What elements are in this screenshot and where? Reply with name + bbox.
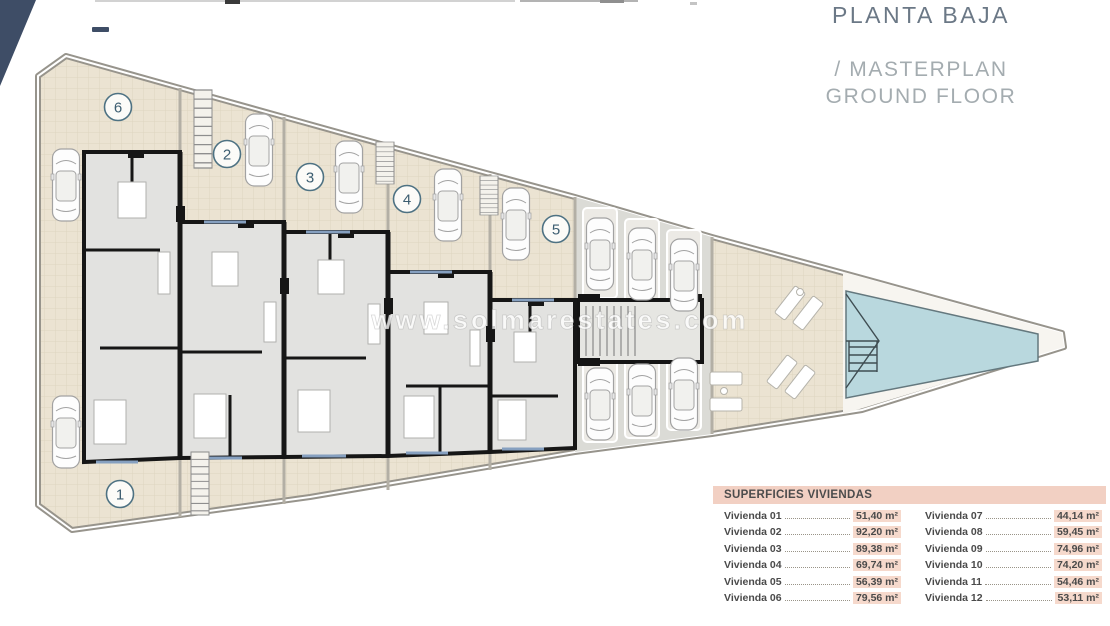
table-row: Vivienda 0744,14 m²: [925, 510, 1102, 526]
table-columns: Vivienda 0151,40 m² Vivienda 0292,20 m² …: [713, 510, 1106, 608]
subtitle-line-1: / MASTERPLAN: [806, 56, 1036, 83]
dot-leader: [785, 567, 850, 568]
page-subtitle: / MASTERPLAN GROUND FLOOR: [806, 56, 1036, 110]
table-row: Vivienda 0389,38 m²: [724, 543, 901, 559]
dot-leader: [785, 518, 850, 519]
unit-number: 4: [403, 192, 411, 209]
dot-leader: [986, 551, 1051, 552]
unit-area: 69,74 m²: [853, 559, 901, 571]
unit-area: 51,40 m²: [853, 510, 901, 522]
table-row: Vivienda 0556,39 m²: [724, 576, 901, 592]
surfaces-table: SUPERFICIES VIVIENDAS Vivienda 0151,40 m…: [713, 486, 1106, 608]
car-icon: [51, 149, 81, 221]
unit-name: Vivienda 10: [925, 559, 983, 571]
unit-area: 53,11 m²: [1055, 592, 1102, 604]
car-icon: [585, 218, 615, 290]
unit-area: 92,20 m²: [853, 526, 901, 538]
unit-number: 1: [116, 487, 124, 504]
table-row: Vivienda 0679,56 m²: [724, 592, 901, 608]
unit-marker-4: 4: [394, 186, 421, 213]
unit-name: Vivienda 06: [724, 592, 782, 604]
unit-name: Vivienda 05: [724, 576, 782, 588]
unit-name: Vivienda 03: [724, 543, 782, 555]
car-icon: [669, 239, 699, 311]
table-title: SUPERFICIES VIVIENDAS: [713, 486, 1106, 504]
car-icon: [669, 358, 699, 430]
unit-area: 44,14 m²: [1054, 510, 1102, 522]
stairs-icon: [191, 452, 209, 515]
table-row: Vivienda 1154,46 m²: [925, 576, 1102, 592]
unit-name: Vivienda 09: [925, 543, 983, 555]
unit-marker-5: 5: [543, 216, 570, 243]
dot-leader: [986, 567, 1051, 568]
unit-name: Vivienda 12: [925, 592, 983, 604]
unit-area: 74,96 m²: [1054, 543, 1102, 555]
table-row: Vivienda 0151,40 m²: [724, 510, 901, 526]
unit-name: Vivienda 11: [925, 576, 982, 588]
unit-number: 5: [552, 222, 560, 239]
unit-marker-2: 2: [214, 141, 241, 168]
unit-marker-1: 1: [107, 481, 134, 508]
table-column-right: Vivienda 0744,14 m² Vivienda 0859,45 m² …: [925, 510, 1102, 608]
unit-marker-3: 3: [297, 164, 324, 191]
unit-area: 79,56 m²: [853, 592, 901, 604]
table-column-left: Vivienda 0151,40 m² Vivienda 0292,20 m² …: [724, 510, 901, 608]
subtitle-line-2: GROUND FLOOR: [806, 83, 1036, 110]
car-icon: [334, 141, 364, 213]
dot-leader: [785, 584, 850, 585]
title-block: PLANTA BAJA / MASTERPLAN GROUND FLOOR: [806, 2, 1036, 110]
unit-name: Vivienda 04: [724, 559, 782, 571]
unit-number: 6: [114, 100, 122, 117]
unit-name: Vivienda 07: [925, 510, 983, 522]
car-icon: [627, 228, 657, 300]
unit-area: 74,20 m²: [1054, 559, 1102, 571]
dot-leader: [986, 534, 1051, 535]
table-row: Vivienda 1074,20 m²: [925, 559, 1102, 575]
table-row: Vivienda 0974,96 m²: [925, 543, 1102, 559]
unit-name: Vivienda 02: [724, 526, 782, 538]
car-icon: [501, 188, 531, 260]
unit-marker-6: 6: [105, 94, 132, 121]
unit-area: 59,45 m²: [1054, 526, 1102, 538]
unit-name: Vivienda 08: [925, 526, 983, 538]
car-icon: [627, 364, 657, 436]
watermark: www.solmarestates.com: [370, 305, 748, 335]
unit-number: 3: [306, 170, 314, 187]
unit-name: Vivienda 01: [724, 510, 782, 522]
dot-leader: [785, 534, 850, 535]
dot-leader: [985, 584, 1051, 585]
dot-leader: [986, 600, 1052, 601]
page-title: PLANTA BAJA: [806, 2, 1036, 29]
unit-area: 54,46 m²: [1054, 576, 1102, 588]
dot-leader: [785, 551, 850, 552]
stairs-icon: [376, 142, 394, 184]
table-row: Vivienda 0859,45 m²: [925, 526, 1102, 542]
unit-area: 89,38 m²: [853, 543, 901, 555]
unit-number: 2: [223, 147, 231, 164]
dot-leader: [785, 600, 850, 601]
car-icon: [585, 368, 615, 440]
car-icon: [433, 169, 463, 241]
unit-area: 56,39 m²: [853, 576, 901, 588]
brochure-page: 1 2 3 4 5 6 www.solmare: [0, 0, 1110, 626]
stairs-icon: [480, 176, 498, 215]
dot-leader: [986, 518, 1051, 519]
car-icon: [244, 114, 274, 186]
stairs-icon: [194, 90, 212, 168]
table-row: Vivienda 0469,74 m²: [724, 559, 901, 575]
table-row: Vivienda 1253,11 m²: [925, 592, 1102, 608]
car-icon: [51, 396, 81, 468]
table-row: Vivienda 0292,20 m²: [724, 526, 901, 542]
